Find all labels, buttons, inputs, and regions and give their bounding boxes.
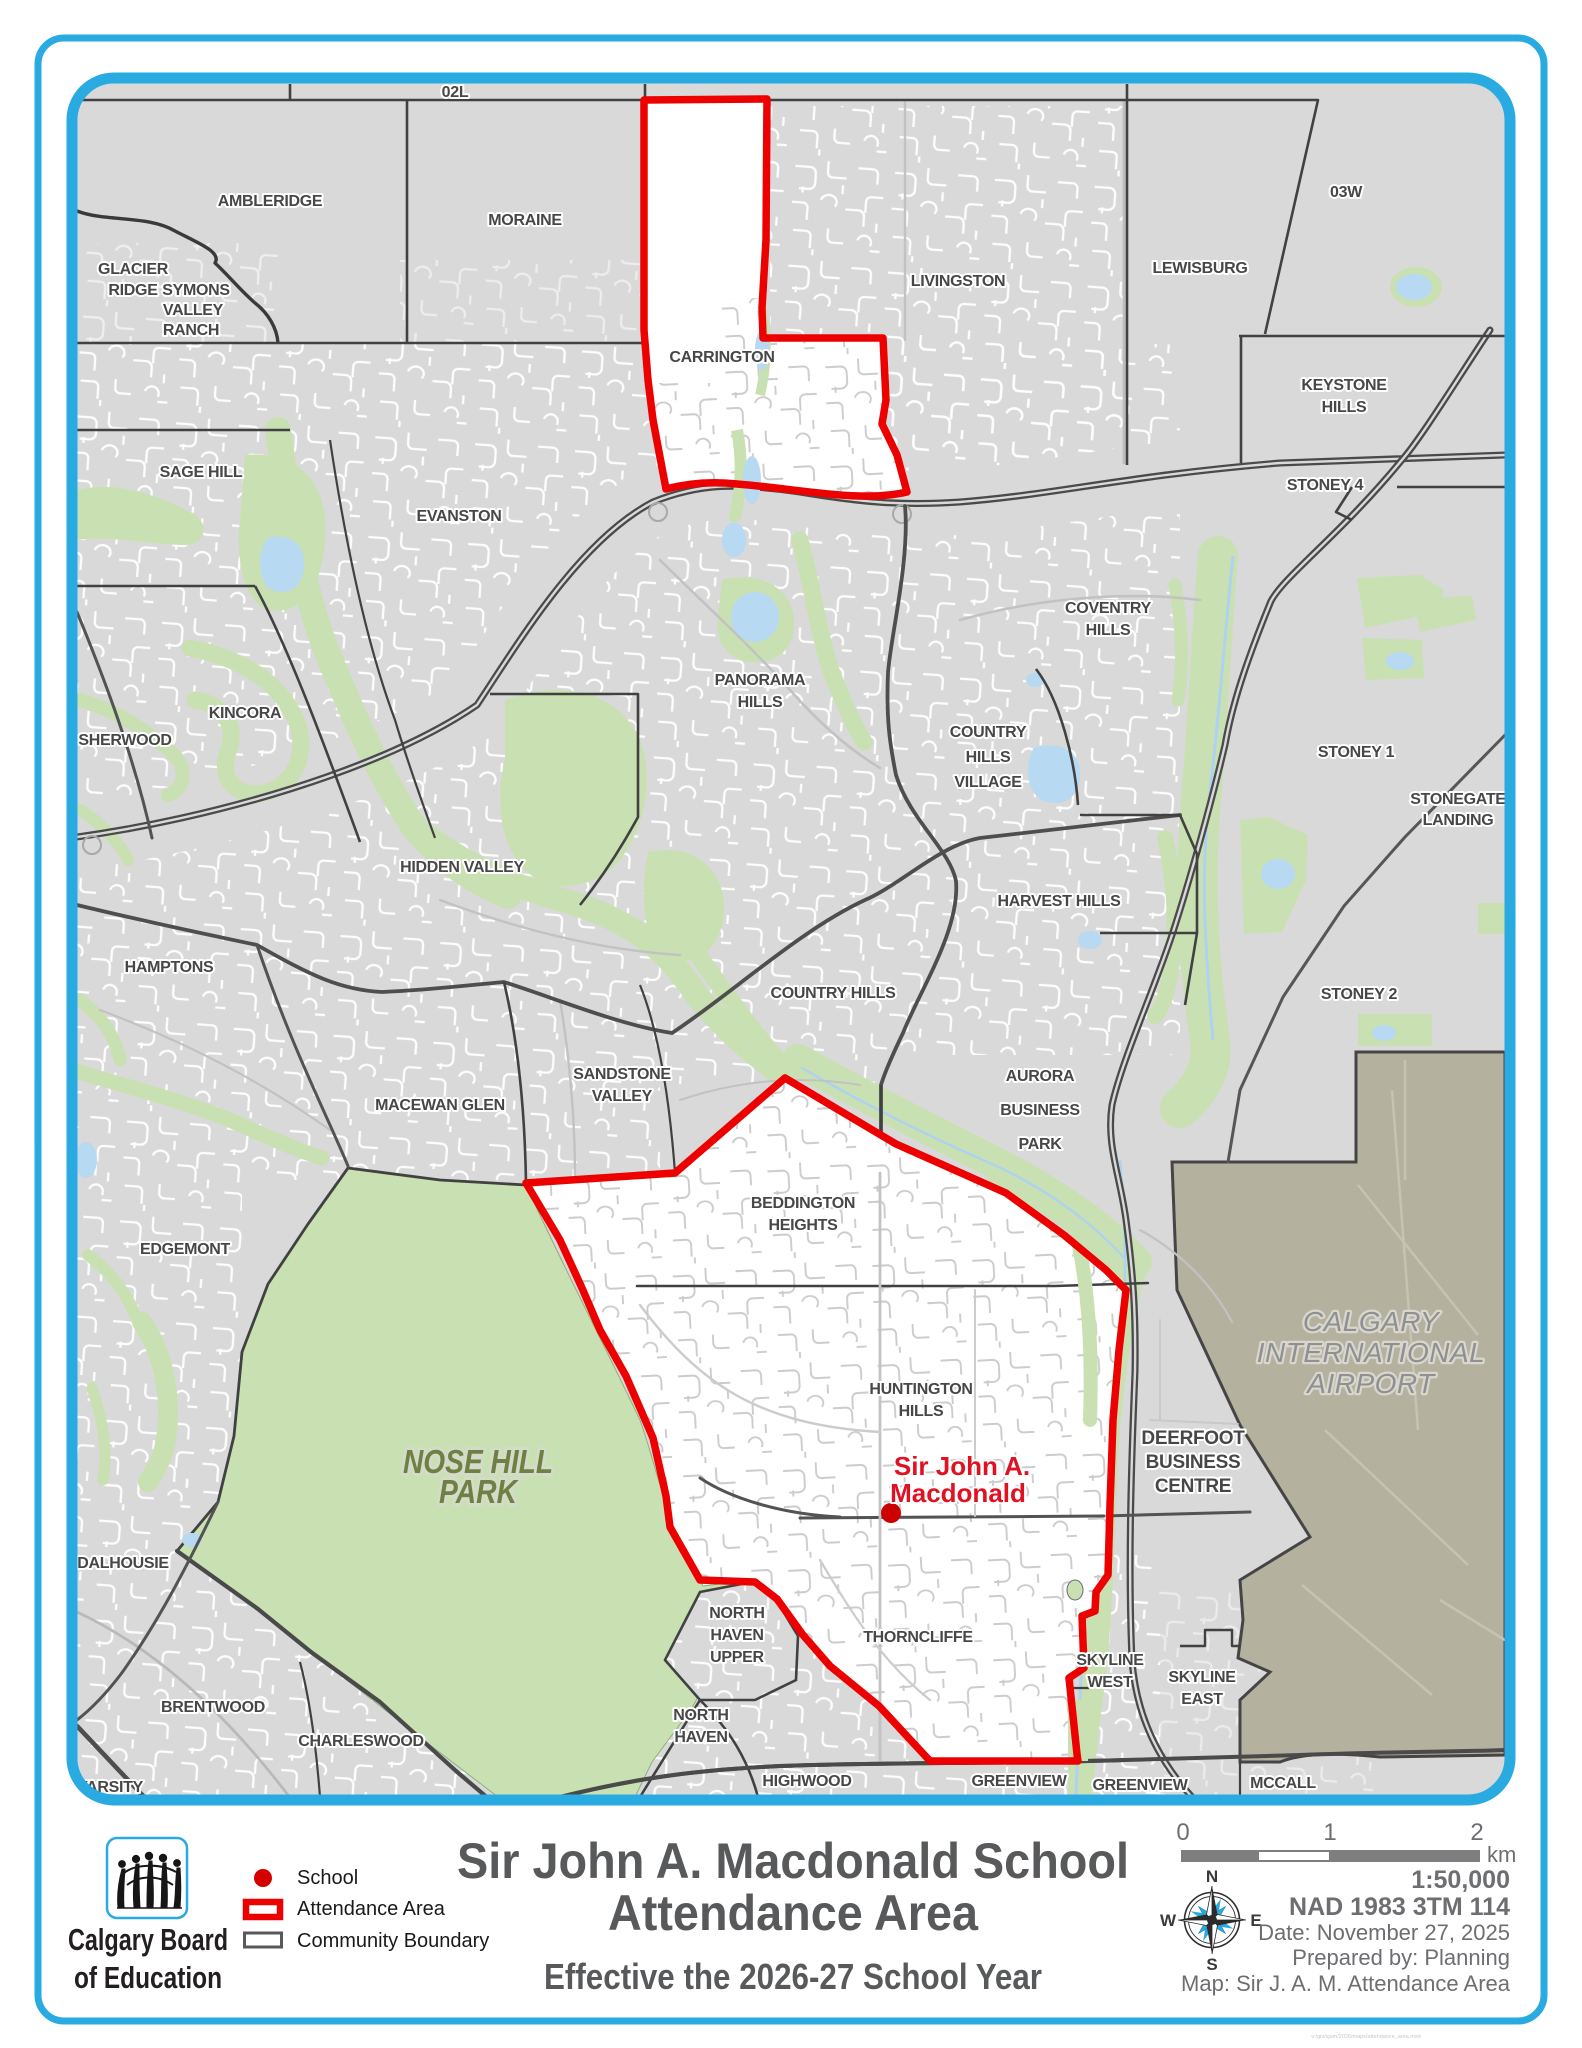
svg-text:MACEWAN GLEN: MACEWAN GLEN	[375, 1097, 505, 1114]
svg-text:CALGARY: CALGARY	[1303, 1306, 1441, 1337]
svg-text:BUSINESS: BUSINESS	[1146, 1452, 1241, 1473]
svg-text:STONEY 2: STONEY 2	[1321, 986, 1398, 1003]
svg-text:Attendance Area: Attendance Area	[297, 1898, 446, 1920]
svg-text:VILLAGE: VILLAGE	[954, 774, 1022, 791]
svg-text:COVENTRY: COVENTRY	[1065, 600, 1152, 617]
svg-text:Attendance Area: Attendance Area	[608, 1885, 979, 1941]
svg-text:CARRINGTON: CARRINGTON	[669, 349, 774, 366]
svg-text:STONEGATE: STONEGATE	[1410, 791, 1506, 808]
svg-text:RIDGE: RIDGE	[108, 282, 158, 299]
svg-text:Effective the 2026-27 School Y: Effective the 2026-27 School Year	[544, 1956, 1042, 1997]
svg-text:HARVEST HILLS: HARVEST HILLS	[998, 893, 1122, 910]
svg-text:Calgary Board: Calgary Board	[68, 1922, 228, 1957]
svg-text:HILLS: HILLS	[899, 1403, 944, 1420]
svg-text:HILLS: HILLS	[1086, 622, 1131, 639]
svg-text:v:/gis/sjam/2026/maps/attendan: v:/gis/sjam/2026/maps/attendance_area.mx…	[1311, 2034, 1420, 2040]
svg-text:CHARLESWOOD: CHARLESWOOD	[298, 1733, 424, 1750]
svg-text:SKYLINE: SKYLINE	[1168, 1669, 1236, 1686]
svg-text:Sir John A.: Sir John A.	[894, 1451, 1030, 1481]
svg-text:Community Boundary: Community Boundary	[297, 1930, 489, 1952]
svg-text:PANORAMA: PANORAMA	[715, 672, 806, 689]
svg-text:W: W	[1160, 1911, 1177, 1930]
svg-text:N: N	[1206, 1867, 1218, 1886]
svg-text:02L: 02L	[442, 84, 469, 101]
svg-text:COUNTRY: COUNTRY	[950, 724, 1027, 741]
svg-text:UPPER: UPPER	[710, 1649, 764, 1666]
svg-text:AURORA: AURORA	[1006, 1068, 1075, 1085]
svg-text:PARK: PARK	[439, 1473, 519, 1510]
svg-text:MORAINE: MORAINE	[488, 212, 562, 229]
svg-text:SANDSTONE: SANDSTONE	[573, 1066, 671, 1083]
svg-text:SKYLINE: SKYLINE	[1076, 1652, 1144, 1669]
svg-text:EAST: EAST	[1181, 1691, 1223, 1708]
svg-text:HIDDEN VALLEY: HIDDEN VALLEY	[400, 859, 524, 876]
svg-text:KINCORA: KINCORA	[209, 705, 282, 722]
svg-text:LEWISBURG: LEWISBURG	[1152, 260, 1247, 277]
svg-text:AIRPORT: AIRPORT	[1305, 1368, 1436, 1399]
svg-text:NORTH: NORTH	[673, 1707, 728, 1724]
svg-text:DALHOUSIE: DALHOUSIE	[77, 1555, 169, 1572]
svg-text:Macdonald: Macdonald	[890, 1478, 1026, 1508]
svg-text:HAVEN: HAVEN	[710, 1627, 763, 1644]
svg-text:0: 0	[1176, 1819, 1189, 1846]
svg-text:HILLS: HILLS	[1322, 399, 1367, 416]
svg-text:VALLEY: VALLEY	[163, 302, 224, 319]
svg-text:COUNTRY HILLS: COUNTRY HILLS	[771, 985, 897, 1002]
svg-text:EVANSTON: EVANSTON	[416, 508, 501, 525]
svg-text:INTERNATIONAL: INTERNATIONAL	[1257, 1337, 1485, 1368]
svg-text:HILLS: HILLS	[966, 749, 1011, 766]
svg-text:of Education: of Education	[74, 1960, 222, 1995]
svg-text:KEYSTONE: KEYSTONE	[1301, 377, 1387, 394]
svg-text:WEST: WEST	[1087, 1674, 1133, 1691]
svg-text:Sir John A. Macdonald School: Sir John A. Macdonald School	[457, 1833, 1129, 1889]
svg-text:School: School	[297, 1867, 358, 1889]
svg-text:EDGEMONT: EDGEMONT	[140, 1241, 231, 1258]
svg-text:AMBLERIDGE: AMBLERIDGE	[218, 193, 323, 210]
svg-text:Prepared by: Planning: Prepared by: Planning	[1292, 1945, 1510, 1970]
svg-text:km: km	[1487, 1842, 1516, 1867]
svg-text:STONEY 1: STONEY 1	[1318, 744, 1395, 761]
svg-text:HILLS: HILLS	[738, 694, 783, 711]
svg-text:BEDDINGTON: BEDDINGTON	[751, 1195, 855, 1212]
svg-text:03W: 03W	[1330, 184, 1363, 201]
svg-text:HIGHWOOD: HIGHWOOD	[762, 1773, 851, 1790]
svg-text:BRENTWOOD: BRENTWOOD	[161, 1699, 265, 1716]
svg-text:GREENVIEW: GREENVIEW	[1092, 1777, 1188, 1794]
svg-text:CENTRE: CENTRE	[1155, 1476, 1231, 1497]
svg-text:DEERFOOT: DEERFOOT	[1141, 1428, 1245, 1449]
svg-text:1:50,000: 1:50,000	[1411, 1866, 1510, 1894]
svg-text:MCCALL: MCCALL	[1250, 1775, 1316, 1792]
svg-text:NORTH: NORTH	[709, 1605, 764, 1622]
svg-text:SAGE HILL: SAGE HILL	[160, 464, 243, 481]
svg-text:1: 1	[1323, 1819, 1336, 1846]
svg-text:HAMPTONS: HAMPTONS	[125, 959, 214, 976]
svg-text:VALLEY: VALLEY	[592, 1088, 653, 1105]
svg-text:RANCH: RANCH	[163, 322, 219, 339]
svg-text:Date: November 27, 2025: Date: November 27, 2025	[1258, 1920, 1510, 1945]
svg-text:2: 2	[1470, 1819, 1483, 1846]
svg-text:LANDING: LANDING	[1423, 812, 1494, 829]
svg-text:THORNCLIFFE: THORNCLIFFE	[863, 1629, 973, 1646]
svg-text:PARK: PARK	[1019, 1136, 1063, 1153]
svg-text:HAVEN: HAVEN	[674, 1729, 727, 1746]
svg-text:HEIGHTS: HEIGHTS	[768, 1217, 838, 1234]
svg-text:SHERWOOD: SHERWOOD	[78, 732, 171, 749]
svg-text:BUSINESS: BUSINESS	[1000, 1102, 1080, 1119]
svg-text:GLACIER: GLACIER	[98, 261, 169, 278]
svg-text:Map: Sir J. A. M. Attendance A: Map: Sir J. A. M. Attendance Area	[1181, 1971, 1511, 1996]
svg-text:LIVINGSTON: LIVINGSTON	[911, 273, 1006, 290]
svg-text:HUNTINGTON: HUNTINGTON	[869, 1381, 972, 1398]
svg-text:GREENVIEW: GREENVIEW	[971, 1773, 1067, 1790]
svg-text:SYMONS: SYMONS	[162, 282, 230, 299]
svg-text:STONEY 4: STONEY 4	[1287, 477, 1364, 494]
svg-text:NAD 1983 3TM 114: NAD 1983 3TM 114	[1289, 1893, 1510, 1921]
